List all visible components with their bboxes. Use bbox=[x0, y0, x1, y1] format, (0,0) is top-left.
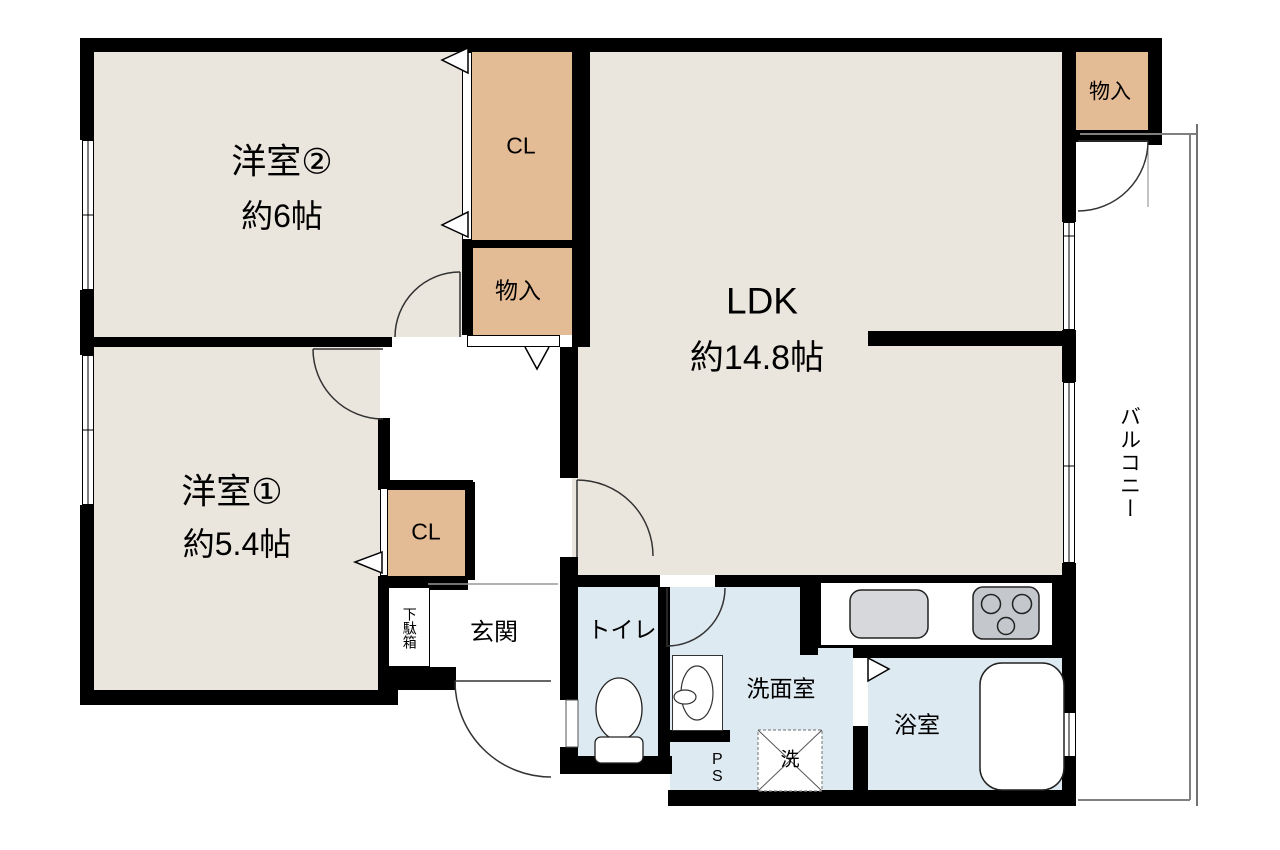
room-label-ldk-size: 約14.8帖 bbox=[690, 341, 824, 375]
room-label-bedroom1-name: 洋室① bbox=[181, 475, 282, 510]
label-washroom: 洗面室 bbox=[747, 678, 816, 701]
label-entrance: 玄関 bbox=[470, 621, 518, 645]
label-pipe-space: PS bbox=[708, 751, 726, 785]
room-label-ldk-name: LDK bbox=[726, 283, 798, 320]
washbasin-icon bbox=[674, 666, 713, 720]
closet-top-marker-upper bbox=[442, 48, 468, 73]
label-storage-mid: 物入 bbox=[495, 280, 541, 303]
kitchen-sink-icon bbox=[850, 590, 928, 638]
door-bedroom2 bbox=[395, 272, 460, 337]
room-label-bedroom2-name: 洋室② bbox=[231, 145, 332, 180]
room-label-bedroom1-size: 約5.4帖 bbox=[183, 528, 292, 560]
floorplan: 洋室② 約6帖 洋室① 約5.4帖 LDK 約14.8帖 CL 物入 物入 CL… bbox=[0, 0, 1280, 850]
label-balcony: バルコニー bbox=[1117, 406, 1140, 521]
door-entrance bbox=[455, 681, 551, 777]
label-storage-balcony: 物入 bbox=[1089, 82, 1131, 103]
storage-mid-door-marker bbox=[525, 347, 549, 369]
room-label-bedroom2-size: 約6帖 bbox=[241, 200, 323, 232]
bathroom-door-marker bbox=[868, 658, 889, 681]
label-bathroom: 浴室 bbox=[894, 714, 940, 737]
window-glazing-lines bbox=[82, 141, 1075, 756]
door-toilet-leaf bbox=[566, 700, 578, 747]
label-toilet: トイレ bbox=[588, 619, 657, 642]
label-closet-top: CL bbox=[506, 135, 535, 158]
door-ldk bbox=[577, 480, 653, 557]
symbols-layer bbox=[0, 0, 1280, 850]
door-washroom bbox=[667, 588, 725, 647]
stove-icon bbox=[973, 587, 1039, 639]
bathtub-icon bbox=[980, 663, 1064, 790]
label-shoe-cabinet: 下駄箱 bbox=[401, 607, 416, 649]
door-balcony bbox=[1078, 141, 1148, 211]
closet-top-marker-lower bbox=[442, 212, 468, 237]
toilet-icon bbox=[595, 678, 643, 763]
label-closet-bedroom1: CL bbox=[411, 521, 440, 544]
label-washer: 洗 bbox=[780, 751, 799, 770]
closet-bedroom1-marker bbox=[355, 552, 382, 573]
door-bedroom1 bbox=[313, 349, 383, 419]
